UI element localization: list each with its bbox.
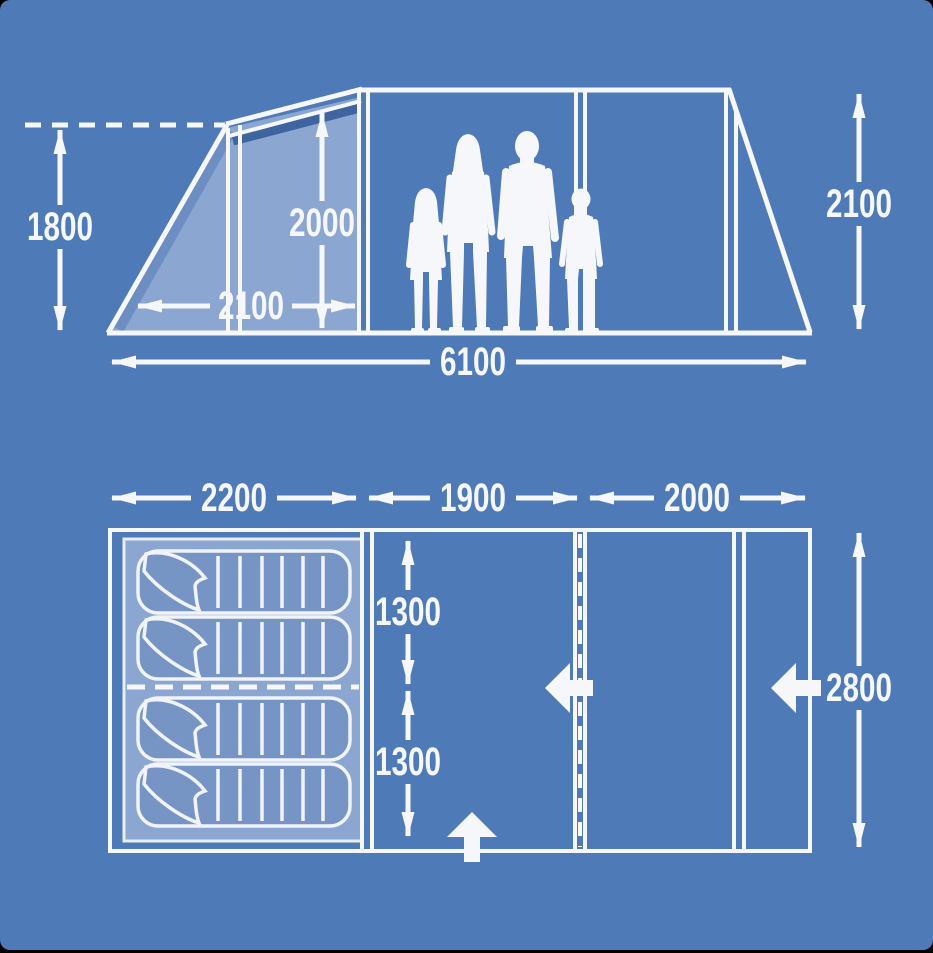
diagram-svg: 1800 2000 2100 6100 2100 (0, 0, 933, 950)
dimension-label-2800: 2800 (826, 666, 892, 710)
dimension-front-length: 2000 (590, 476, 805, 520)
tent-dimensions-diagram: 1800 2000 2100 6100 2100 (0, 0, 933, 950)
entrance-arrows (447, 663, 821, 862)
dimension-total-width: 2800 (826, 533, 892, 847)
rear-slant-line (729, 89, 810, 332)
dimension-label-2000: 2000 (289, 201, 355, 245)
dimension-bedroom-length: 2200 (112, 476, 356, 520)
dimension-label-1900: 1900 (440, 476, 506, 520)
dimension-label-1300-bottom: 1300 (375, 740, 441, 784)
dimension-bedroom-half-top: 1300 (375, 541, 441, 684)
dimension-bedroom-half-bottom: 1300 (375, 691, 441, 836)
dimension-rear-height: 2100 (826, 94, 892, 329)
side-door-arrow-icon (771, 663, 821, 713)
dimension-awning-height: 1800 (27, 130, 93, 330)
silhouette-boy (562, 189, 600, 334)
dimension-middle-length: 1900 (369, 476, 577, 520)
sleeping-bag-1 (138, 551, 350, 613)
dimension-label-2200: 2200 (201, 476, 267, 520)
sleeping-bag-4 (138, 764, 350, 826)
silhouette-girl (409, 188, 443, 333)
front-door-arrow-icon (447, 812, 497, 862)
side-view-diagram: 1800 2000 2100 6100 2100 (25, 89, 892, 384)
family-silhouette (409, 131, 600, 333)
dimension-label-2100-depth: 2100 (218, 284, 284, 328)
dimension-label-1800: 1800 (27, 205, 93, 249)
floor-plan-diagram: 2200 1900 2000 1300 1300 (110, 476, 892, 862)
dimension-label-2100-height: 2100 (826, 182, 892, 226)
silhouette-man (501, 131, 555, 333)
dimension-label-2000-plan: 2000 (664, 476, 730, 520)
dimension-total-length: 6100 (112, 340, 806, 384)
dimension-label-1300-top: 1300 (375, 590, 441, 634)
silhouette-woman (445, 134, 492, 333)
sleeping-bag-3 (138, 698, 350, 760)
sleeping-bag-2 (138, 617, 350, 679)
dimension-label-6100: 6100 (440, 340, 506, 384)
